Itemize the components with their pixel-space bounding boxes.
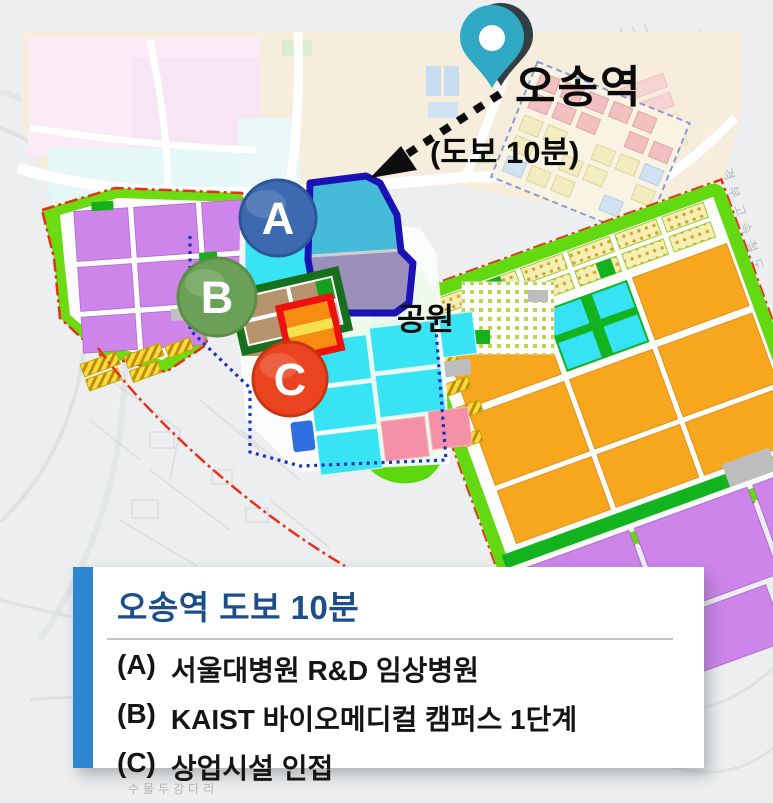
legend-item-c: (C) 상업시설 인접 [117, 747, 704, 787]
legend-item-c-label: 상업시설 인접 [171, 747, 333, 787]
park-label: 공원 [397, 302, 454, 337]
station-label: 오송역 [515, 63, 642, 112]
legend-item-c-key: (C) [117, 747, 156, 787]
svg-text:B: B [201, 272, 234, 323]
legend-card: 오송역 도보 10분 (A) 서울대병원 R&D 임상병원 (B) KAIST … [73, 567, 704, 768]
legend-title: 오송역 도보 10분 [117, 581, 704, 629]
legend-item-a-key: (A) [117, 649, 156, 689]
marker-b: B [178, 258, 256, 336]
legend-content: 오송역 도보 10분 (A) 서울대병원 R&D 임상병원 (B) KAIST … [93, 567, 704, 768]
legend-accent-bar [73, 567, 93, 768]
walk-time-label: (도보 10분) [430, 135, 579, 170]
legend-divider [107, 638, 673, 640]
legend-item-a: (A) 서울대병원 R&D 임상병원 [117, 649, 704, 689]
legend-item-b-key: (B) [117, 698, 156, 738]
legend-item-a-label: 서울대병원 R&D 임상병원 [171, 649, 479, 689]
svg-text:A: A [262, 193, 295, 244]
legend-item-b: (B) KAIST 바이오메디컬 캠퍼스 1단계 [117, 698, 704, 738]
legend-item-b-label: KAIST 바이오메디컬 캠퍼스 1단계 [171, 698, 577, 738]
marker-c: C [253, 342, 327, 416]
svg-text:C: C [274, 354, 307, 405]
flyer-map-page: 경부고속철도 [0, 0, 773, 803]
marker-a: A [240, 180, 316, 256]
